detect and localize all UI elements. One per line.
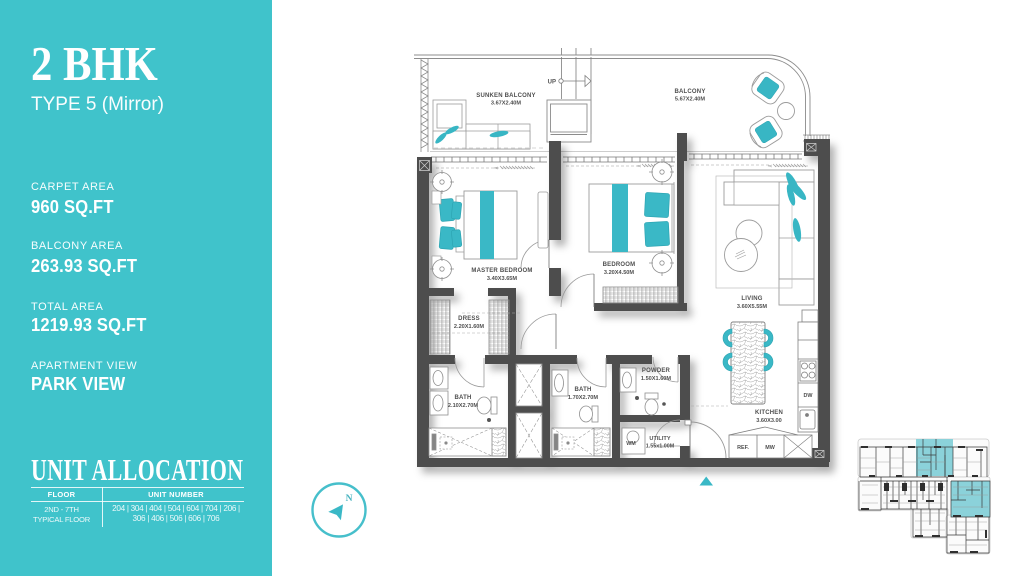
svg-text:DRESS: DRESS bbox=[458, 316, 480, 322]
svg-text:REF.: REF. bbox=[737, 445, 749, 451]
svg-text:MASTER BEDROOM: MASTER BEDROOM bbox=[471, 268, 532, 274]
svg-text:WM: WM bbox=[626, 441, 636, 447]
svg-text:UTILITY: UTILITY bbox=[649, 436, 670, 442]
svg-text:3.20X4.50M: 3.20X4.50M bbox=[604, 270, 635, 276]
svg-text:N: N bbox=[346, 494, 353, 504]
svg-text:3.40X3.65M: 3.40X3.65M bbox=[487, 276, 518, 282]
svg-text:MW: MW bbox=[765, 445, 775, 451]
svg-text:2.10X2.70M: 2.10X2.70M bbox=[448, 403, 479, 409]
svg-text:SUNKEN BALCONY: SUNKEN BALCONY bbox=[476, 93, 535, 99]
svg-text:2.20X1.60M: 2.20X1.60M bbox=[454, 324, 485, 330]
svg-text:5.67X2.40M: 5.67X2.40M bbox=[675, 97, 706, 103]
svg-text:DW: DW bbox=[804, 393, 814, 399]
svg-text:LIVING: LIVING bbox=[741, 296, 762, 302]
svg-text:BATH: BATH bbox=[454, 395, 471, 401]
svg-text:POWDER: POWDER bbox=[642, 368, 671, 374]
svg-text:BALCONY: BALCONY bbox=[674, 89, 705, 95]
svg-text:1.55x1.00M: 1.55x1.00M bbox=[646, 444, 675, 450]
svg-text:3.60X5.55M: 3.60X5.55M bbox=[737, 304, 768, 310]
svg-text:3.67X2.40M: 3.67X2.40M bbox=[491, 101, 522, 107]
svg-text:KITCHEN: KITCHEN bbox=[755, 410, 783, 416]
svg-text:3.60X3.00: 3.60X3.00 bbox=[756, 418, 782, 424]
svg-text:UP: UP bbox=[548, 80, 556, 86]
svg-text:1.70X2.70M: 1.70X2.70M bbox=[568, 395, 599, 401]
svg-text:BATH: BATH bbox=[574, 387, 591, 393]
svg-text:BEDROOM: BEDROOM bbox=[603, 262, 636, 268]
svg-text:1.50X1.60M: 1.50X1.60M bbox=[641, 376, 672, 382]
